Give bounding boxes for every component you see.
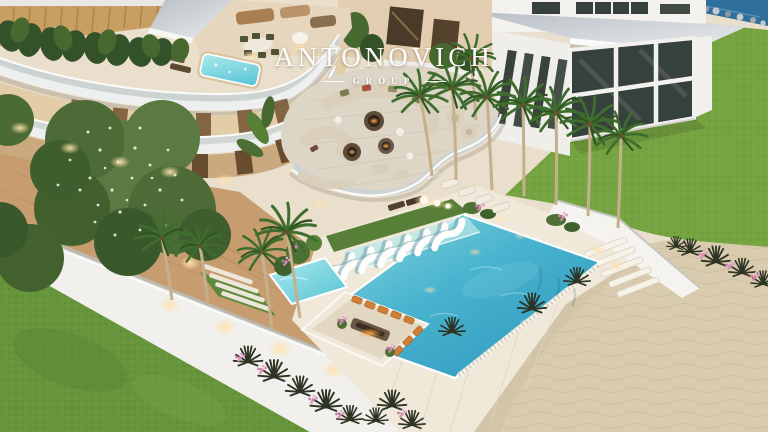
villa-render-image: ANTONOVICH GROUP <box>0 0 768 432</box>
render-scene <box>0 0 768 432</box>
